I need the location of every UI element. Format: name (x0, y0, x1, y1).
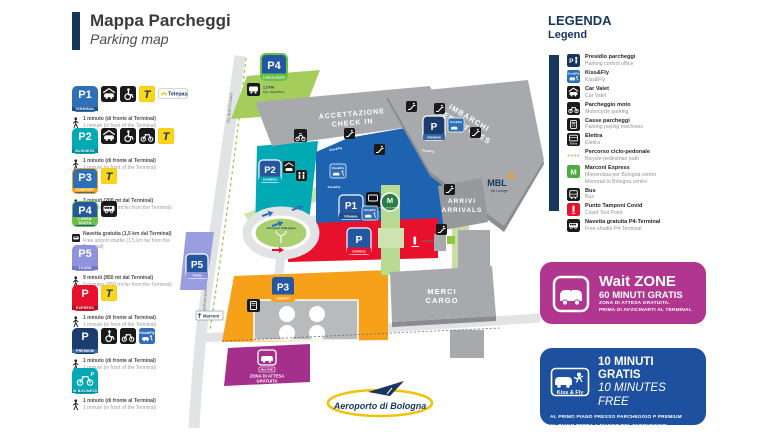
svg-text:Kiss&Fly: Kiss&Fly (567, 72, 580, 76)
svg-text:LUNGA SOSTA: LUNGA SOSTA (263, 76, 285, 80)
marconi-icon: M (567, 165, 580, 178)
legend-item-bike-path: Percorso ciclo-pedonaleBicycle-pedestria… (567, 149, 717, 162)
legend-label-english: Free shuttle P4-Terminal (585, 226, 660, 233)
wait-zone-card: Wait ZONE 60 MINUTI GRATIS ZONA DI ATTES… (540, 262, 706, 324)
elettra-icon: Elettra (567, 133, 580, 146)
svg-text:M: M (570, 168, 576, 177)
svg-text:EXPRESS: EXPRESS (352, 249, 365, 253)
direction-sign: Marconi (196, 311, 223, 320)
legend-label-italian: Marconi Express (585, 165, 656, 172)
legend-item-kissfly: Kiss&FlyKiss&FlyKiss&Fly (567, 70, 717, 83)
svg-text:Marconi: Marconi (203, 314, 219, 319)
bus-icon (567, 188, 580, 201)
svg-text:PREMIUM: PREMIUM (427, 136, 441, 140)
svg-text:1,5 KM: 1,5 KM (263, 86, 274, 90)
kiss-fly-note1: AL PRIMO PIANO PRESSO PARCHEGGIO P PREMI… (550, 414, 696, 421)
svg-text:ARRIVALS: ARRIVALS (442, 207, 483, 214)
svg-text:MARCONI EXPRESS: MARCONI EXPRESS (379, 207, 401, 210)
svg-text:Kiss&Fly: Kiss&Fly (332, 166, 344, 170)
svg-text:MBL: MBL (487, 178, 507, 188)
legend-label-english: Elettra (585, 140, 602, 147)
legend-label-english: Covid Test Point (585, 210, 642, 217)
svg-text:GRATUITA: GRATUITA (256, 379, 277, 384)
parking-office-icon: P (567, 54, 580, 67)
legend-label-italian: Kiss&Fly (585, 70, 609, 77)
kissfly-badge-premium: Kiss&Fly (448, 118, 464, 132)
p3-sign: P3 COMFORT (271, 276, 295, 301)
svg-text:P: P (569, 58, 574, 65)
svg-text:DAL TERMINAL: DAL TERMINAL (263, 90, 285, 94)
car-valet-icon (567, 86, 580, 99)
svg-text:P1: P1 (345, 201, 358, 212)
svg-text:P: P (355, 234, 362, 246)
svg-text:Aeroporto di Bologna: Aeroporto di Bologna (333, 401, 427, 411)
legend-title-italian: LEGENDA (548, 14, 612, 29)
legend-label-english: Car Valet (585, 93, 609, 100)
svg-text:P3: P3 (277, 283, 290, 294)
svg-text:Wait ZONE: Wait ZONE (261, 369, 274, 372)
p5-sign: P5 TOURS (186, 254, 208, 278)
svg-text:P2: P2 (264, 165, 276, 176)
legend-items: PPresidio parcheggiParking control offic… (567, 54, 717, 233)
kiss-fly-subtitle: 10 MINUTES FREE (598, 382, 696, 408)
legend-item-motorcycle: Parcheggio motoMotorcycle parking (567, 102, 717, 115)
p-premium-sign: P PREMIUM (423, 116, 445, 140)
wait-zone-line1: 60 MINUTI GRATIS (599, 290, 692, 301)
wait-zone-line3: PRIMA DI AVVICINARTI AL TERMINAL (599, 308, 692, 314)
svg-text:P: P (431, 122, 438, 133)
svg-text:ARRIVI: ARRIVI (448, 198, 476, 205)
wait-zone-title: Wait ZONE (599, 274, 692, 290)
svg-text:M: M (387, 196, 393, 205)
escalator-icon (434, 103, 445, 114)
legend-title: LEGENDA Legend (548, 14, 612, 41)
shuttle-icon (567, 219, 580, 232)
legend-label-italian: Punto Tamponi Covid (585, 203, 642, 210)
legend-item-bus: BusBus (567, 188, 717, 201)
legend-label-english: Monorotaia per Bologna centro (585, 172, 656, 179)
svg-text:P4: P4 (267, 60, 281, 72)
p4-sign: P4 LUNGA SOSTA (261, 54, 287, 80)
covid-icon (567, 203, 580, 216)
legend-label-english: Motorcycle parking (585, 109, 631, 116)
legend-label-italian: Parcheggio moto (585, 102, 631, 109)
escalator-icon (374, 144, 385, 155)
bike-path-icon (567, 149, 580, 162)
svg-text:Vip Lounge: Vip Lounge (490, 189, 507, 193)
escalator-icon (344, 128, 355, 139)
svg-text:TOURS: TOURS (192, 274, 202, 278)
gray-block-south (450, 330, 484, 358)
svg-text:TERMINAL: TERMINAL (344, 215, 359, 219)
tank-building (254, 300, 358, 341)
people-map-icon (296, 170, 307, 181)
legend-label-english-2: Monorail to Bologna centre (585, 179, 656, 186)
legend-title-english: Legend (548, 29, 612, 41)
wait-zone-car-icon (552, 275, 590, 313)
kiss-fly-icon: Kiss & Fly (550, 367, 590, 397)
legend-accent-bar (549, 55, 559, 211)
svg-text:BUSINESS: BUSINESS (263, 178, 277, 182)
legend-label-english: Parking control office (585, 61, 635, 68)
legend-label-italian: Presidio parcheggi (585, 54, 635, 61)
kiss-fly-title: 10 MINUTI GRATIS (598, 356, 696, 382)
svg-text:Aeroporto di Bologna: Aeroporto di Bologna (267, 226, 296, 230)
car-valet-map-icon (283, 161, 295, 173)
legend-item-covid: Punto Tamponi CovidCovid Test Point (567, 203, 717, 216)
kissfly-micro-3: Kiss&Fly (328, 185, 341, 189)
p2-sign: P2 BUSINESS (259, 160, 281, 182)
kissfly-badge-2: Kiss&Fly (362, 206, 378, 220)
gray-block-east (458, 230, 490, 270)
svg-text:CARGO: CARGO (426, 296, 459, 305)
escalator-icon (470, 127, 481, 138)
airport-logo: Aeroporto di Bologna (328, 381, 432, 416)
moto-parking-map-icon (294, 129, 307, 142)
svg-text:Kiss & Fly: Kiss & Fly (557, 390, 585, 396)
legend-item-pay-machine: Casse parcheggiParking paying machines (567, 118, 717, 131)
svg-text:COMFORT: COMFORT (276, 296, 290, 300)
legend-label-english: Bicycle-pedestrian path (585, 156, 650, 163)
kiss-fly-note2: AL PIANO TERRA A FIANCO DEL PARCHEGGIO P… (550, 424, 696, 432)
legend-label-italian: Casse parcheggi (585, 118, 643, 125)
legend-label-italian: Percorso ciclo-pedonale (585, 149, 650, 156)
kissfly-badge-1: Kiss&Fly (330, 164, 346, 178)
parking-map-page: Mappa Parcheggi Parking map P1TERMINALTT… (0, 0, 768, 432)
kissfly-icon: Kiss&Fly (567, 70, 580, 83)
cargo-label: MERCI CARGO (426, 287, 459, 305)
legend-label-italian: Car Valet (585, 86, 609, 93)
legend-item-parking-office: PPresidio parcheggiParking control offic… (567, 54, 717, 67)
legend-label-english: Kiss&Fly (585, 77, 609, 84)
kiss-fly-card: Kiss & Fly 10 MINUTI GRATIS 10 MINUTES F… (540, 348, 706, 425)
legend-item-marconi: MMarconi ExpressMonorotaia per Bologna c… (567, 165, 717, 185)
legend-label-italian: Bus (585, 188, 596, 195)
svg-text:Elettra: Elettra (570, 142, 578, 146)
escalator-icon (444, 184, 455, 195)
svg-text:MERCI: MERCI (427, 287, 456, 296)
escalator-icon (436, 224, 447, 235)
legend-label-italian: Navetta gratuita P4-Terminal (585, 219, 660, 226)
legend-item-shuttle: Navetta gratuita P4-TerminalFree shuttle… (567, 219, 717, 232)
legend-item-elettra: ElettraElettraElettra (567, 133, 717, 146)
p1-sign: P1 TERMINAL (339, 195, 363, 219)
p-express-sign: P EXPRESS (347, 228, 371, 254)
legend-label-english: Bus (585, 194, 596, 201)
pay-machine-icon (567, 118, 580, 131)
legend-item-car-valet: Car ValetCar Valet (567, 86, 717, 99)
svg-text:P5: P5 (191, 260, 204, 271)
legend-label-english: Parking paying machines (585, 124, 643, 131)
motorcycle-icon (567, 102, 580, 115)
escalator-icon (406, 101, 417, 112)
svg-text:Kiss&Fly: Kiss&Fly (450, 120, 462, 124)
pay-machine-map-icon (247, 299, 260, 312)
legend-label-italian: Elettra (585, 133, 602, 140)
svg-text:Kiss&Fly: Kiss&Fly (364, 208, 376, 212)
